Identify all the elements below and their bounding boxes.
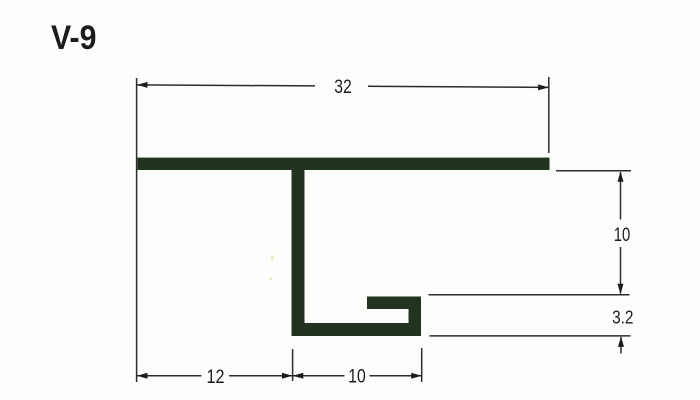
svg-text:32: 32 — [334, 77, 352, 98]
svg-text:10: 10 — [348, 366, 366, 387]
svg-text:V-9: V-9 — [51, 19, 97, 57]
svg-text:12: 12 — [207, 367, 225, 388]
svg-text:3.2: 3.2 — [612, 308, 633, 328]
svg-text:10: 10 — [614, 225, 631, 246]
